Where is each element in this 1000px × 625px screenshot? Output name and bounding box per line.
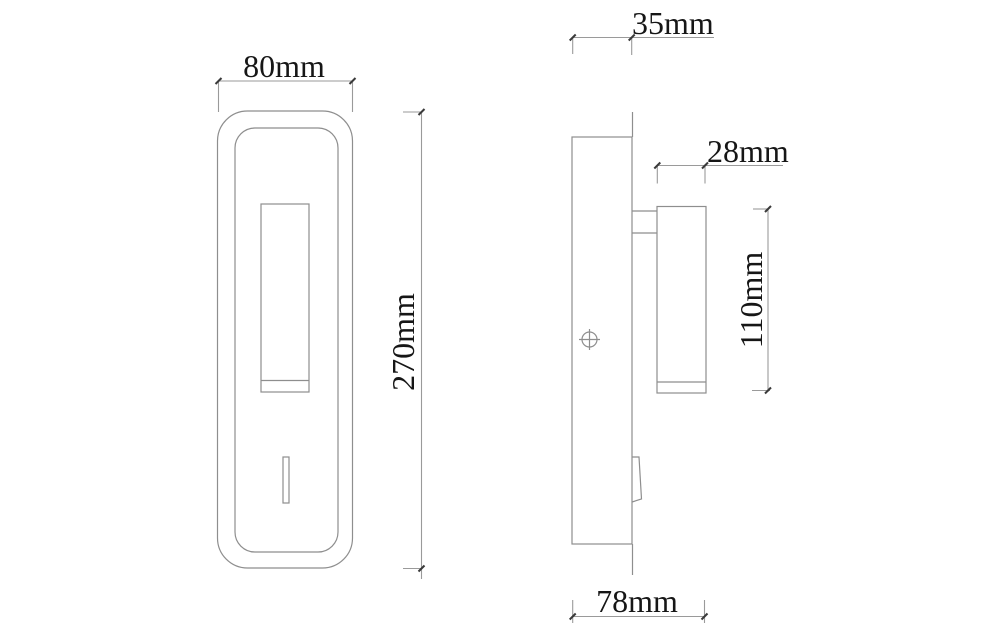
side-lamp-head [657, 207, 706, 394]
front-switch-slot [283, 457, 289, 503]
side-switch [632, 457, 642, 502]
dimension-end-ticks [216, 35, 772, 620]
front-light-panel [261, 204, 309, 392]
dim-front-width [219, 81, 353, 112]
front-view [218, 111, 353, 568]
technical-drawing-canvas: 80mm 270mm 35mm 28mm 110mm 78mm [0, 0, 1000, 625]
screw-head-icon [579, 329, 600, 350]
dimension-lines [216, 35, 784, 624]
dim-front-height-label: 270mm [387, 293, 419, 391]
side-view [572, 112, 706, 575]
dim-overall-depth-label: 78mm [596, 585, 678, 617]
dim-head-height-label: 110mm [735, 252, 767, 349]
side-wall-plate [572, 137, 632, 544]
dim-head-width-label: 28mm [707, 135, 789, 167]
drawing-linework [0, 0, 1000, 625]
dim-front-width-label: 80mm [243, 50, 325, 82]
front-outer-body-outline [218, 111, 353, 568]
dim-plate-depth-label: 35mm [632, 7, 714, 39]
front-inner-face-outline [235, 128, 338, 552]
